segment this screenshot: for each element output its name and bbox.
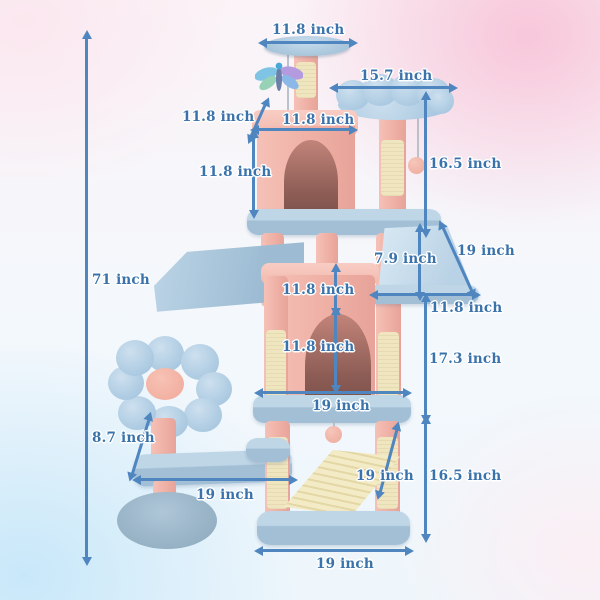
dim-label-base-width: 19 inch — [316, 556, 374, 572]
dim-line-flower-perch-width — [337, 86, 450, 89]
dim-label-flower-stem-height: 8.7 inch — [92, 430, 155, 446]
dim-label-hammock-depth: 7.9 inch — [374, 251, 437, 267]
base-board — [257, 511, 410, 545]
dim-label-lower-condo-width: 19 inch — [312, 398, 370, 414]
dim-line-bottom-section-height — [424, 423, 427, 535]
dim-line-top-perch-width — [266, 41, 350, 44]
dim-label-top-perch-width: 11.8 inch — [272, 22, 344, 38]
dim-line-base-width — [262, 549, 406, 552]
flower-center — [146, 368, 184, 400]
dim-label-upper-condo-height: 11.8 inch — [199, 164, 271, 180]
dim-label-lower-condo-height: 11.8 inch — [282, 339, 354, 355]
dim-label-flower-post-height: 16.5 inch — [429, 156, 501, 172]
post-sisal — [378, 332, 399, 396]
dim-line-overall-height — [85, 38, 88, 558]
dim-line-flower-post-height — [424, 99, 427, 230]
dim-label-upper-condo-width: 11.8 inch — [282, 112, 354, 128]
dim-label-scratch-ramp-length: 19 inch — [356, 468, 414, 484]
dim-label-side-platform-width: 19 inch — [196, 487, 254, 503]
upper-condo-entrance — [284, 140, 338, 216]
dim-label-bottom-section-height: 16.5 inch — [429, 468, 501, 484]
dim-label-middle-gap-height: 11.8 inch — [282, 282, 354, 298]
dim-label-middle-section-height: 17.3 inch — [429, 351, 501, 367]
dim-label-upper-condo-depth: 11.8 inch — [182, 109, 254, 125]
dim-line-upper-condo-width — [258, 128, 350, 131]
small-step — [246, 438, 290, 462]
ball-toy-string — [417, 118, 419, 162]
cat-tree-dimension-diagram: 71 inch 11.8 inch 15.7 inch 11.8 inch 11… — [0, 0, 600, 600]
top-perch — [264, 36, 350, 56]
dragonfly-toy-icon — [255, 58, 303, 98]
flower-perch-post-sisal — [381, 140, 404, 196]
dim-line-lower-condo-width — [262, 391, 404, 394]
dim-line-middle-section-height — [424, 301, 427, 416]
dim-label-flower-perch-width: 15.7 inch — [360, 68, 432, 84]
dim-label-hammock-length: 19 inch — [457, 243, 515, 259]
dim-label-hammock-width: 11.8 inch — [430, 300, 502, 316]
dim-label-overall-height: 71 inch — [92, 272, 150, 288]
dim-line-side-platform-width — [140, 478, 290, 481]
pom-toy — [325, 426, 342, 443]
ball-toy — [408, 157, 425, 174]
